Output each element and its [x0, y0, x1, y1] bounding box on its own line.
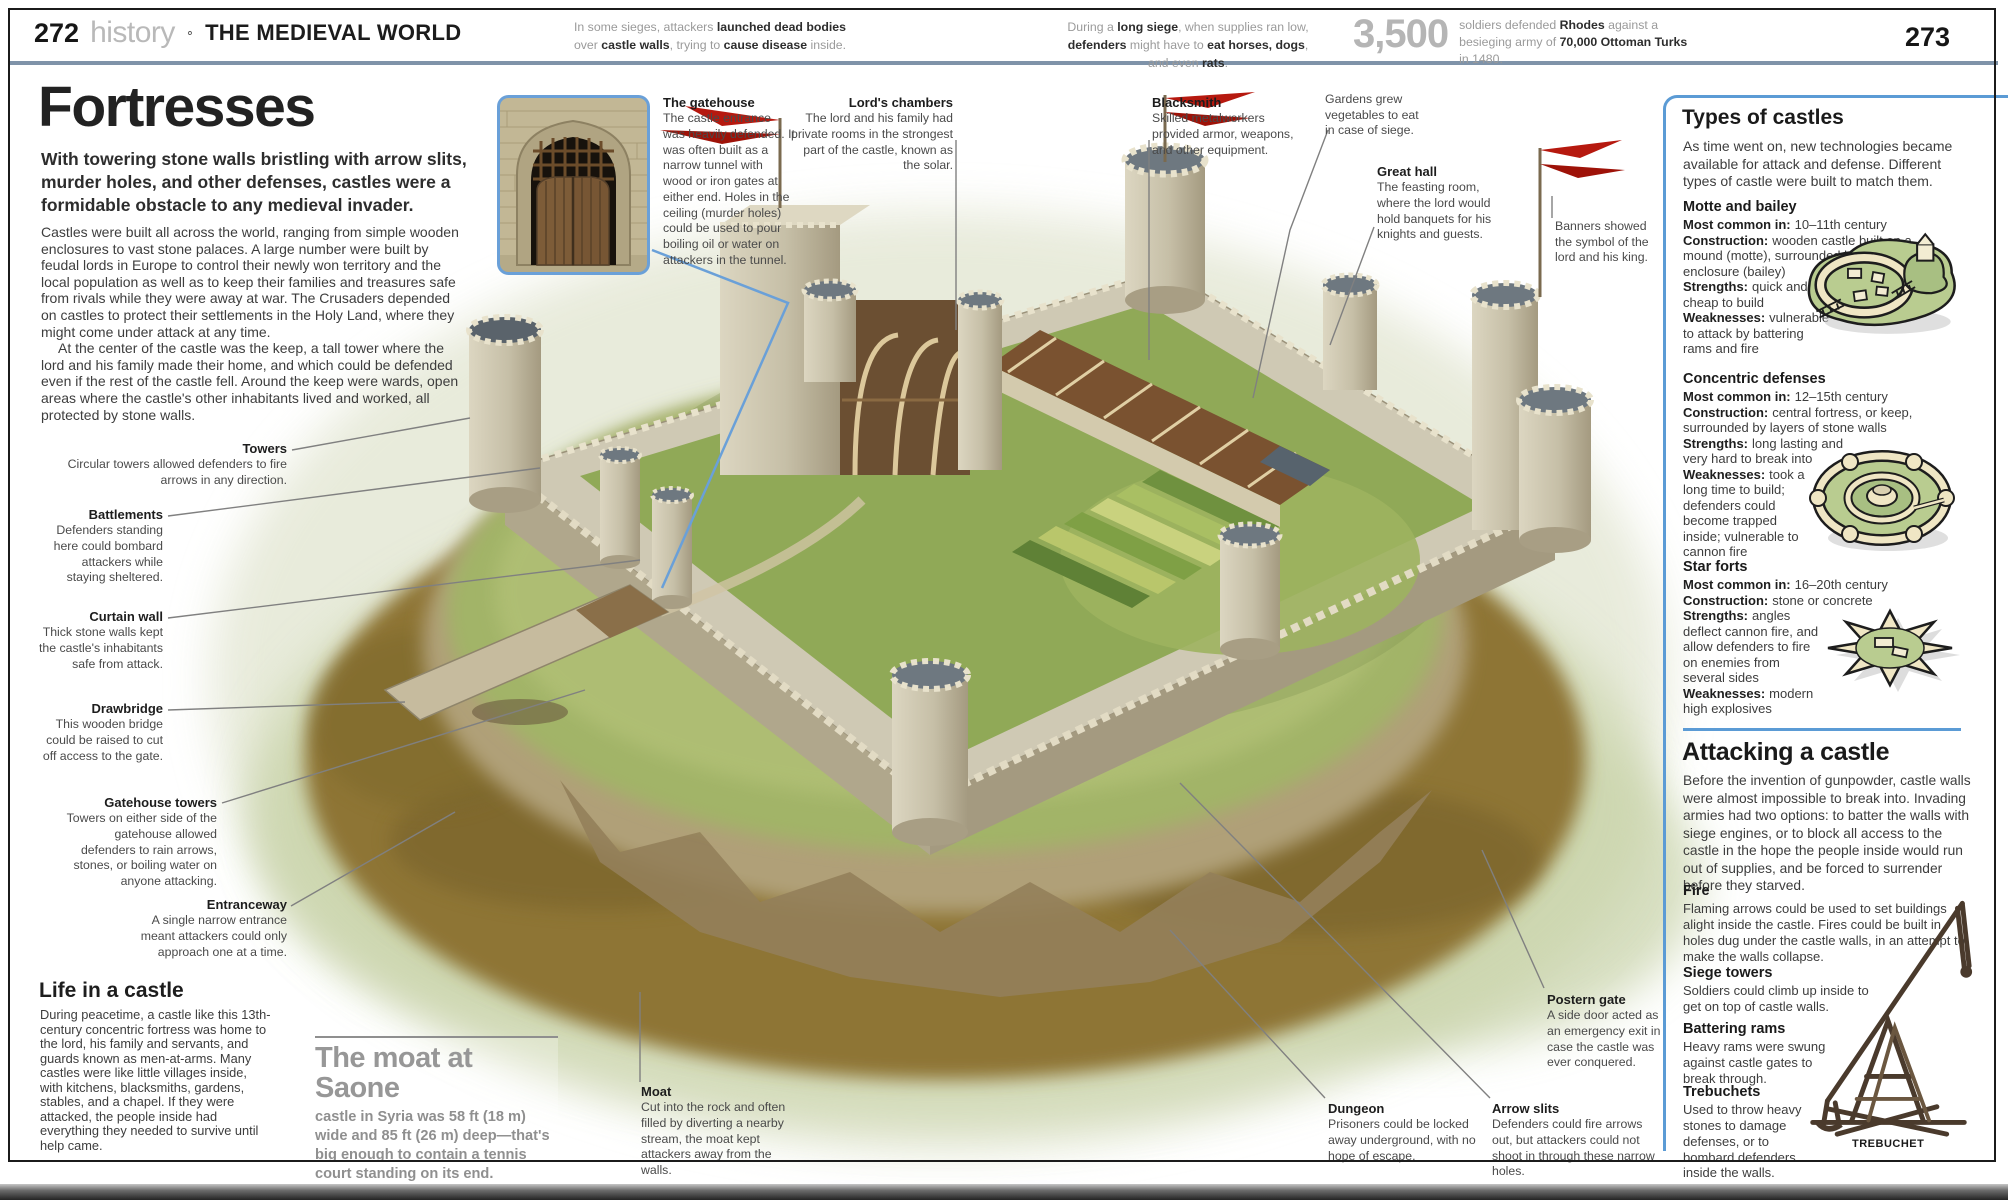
stat-number: 3,500: [1353, 14, 1448, 54]
annotation-title: Moat: [641, 1084, 799, 1100]
header-stat: 3,500 soldiers defended Rhodes against a…: [1353, 14, 1691, 69]
field-label: Construction:: [1683, 593, 1768, 608]
annotation-moat: Moat Cut into the rock and often filled …: [641, 1084, 799, 1179]
field-label: Most common in:: [1683, 389, 1791, 404]
factoid-text: , trying to: [670, 38, 724, 52]
gatehouse-photo-image: [497, 95, 650, 275]
annotation-title: Curtain wall: [35, 609, 163, 625]
field-label: Most common in:: [1683, 577, 1791, 592]
annotation-text: The feasting room, where the lord would …: [1377, 180, 1515, 243]
moat-callout-title: The moat at Saone: [315, 1043, 558, 1104]
factoid-bold: cause disease: [724, 38, 807, 52]
sidebar: Types of castles As time went on, new te…: [1663, 95, 2008, 1151]
life-in-castle-title: Life in a castle: [39, 979, 184, 1003]
entry-title: Motte and bailey: [1683, 198, 1971, 216]
annotation-text: The lord and his family had private room…: [788, 111, 953, 174]
life-in-castle-text: During peacetime, a castle like this 13t…: [40, 1008, 272, 1153]
annotation-dungeon: Dungeon Prisoners could be locked away u…: [1328, 1101, 1498, 1164]
field-value: 12–15th century: [1795, 389, 1888, 404]
stat-bold: 70,000 Ottoman Turks: [1560, 35, 1688, 49]
annotation-gatehouse-towers: Gatehouse towers Towers on either side o…: [62, 795, 217, 890]
entry-title: Star forts: [1683, 558, 1971, 576]
field-label: Most common in:: [1683, 217, 1791, 232]
star-fort-diagram: [1801, 588, 1979, 710]
field-label: Weaknesses:: [1683, 467, 1765, 482]
annotation-text: Banners showed the symbol of the lord an…: [1555, 219, 1661, 266]
field-label: Construction:: [1683, 405, 1768, 420]
factoid-bold: castle walls: [601, 38, 669, 52]
field-label: Weaknesses:: [1683, 686, 1765, 701]
annotation-entranceway: Entranceway A single narrow entrance mea…: [115, 897, 287, 960]
header-factoid-2: During a long siege, when supplies ran l…: [1058, 19, 1318, 72]
chapter-title: THE MEDIEVAL WORLD: [205, 20, 461, 46]
annotation-title: Entranceway: [115, 897, 287, 913]
field: Construction:central fortress, or keep, …: [1683, 405, 1951, 436]
annotation-title: Postern gate: [1547, 992, 1661, 1008]
page-title: Fortresses: [38, 74, 315, 140]
annotation-title: Gatehouse towers: [62, 795, 217, 811]
annotation-title: Battlements: [47, 507, 163, 523]
header-left: 272 history ∘ THE MEDIEVAL WORLD: [34, 16, 461, 50]
factoid-bold: long siege: [1117, 20, 1178, 34]
annotation-great-hall: Great hall The feasting room, where the …: [1377, 164, 1515, 243]
section-label: history: [90, 16, 175, 50]
photo-callout-line: [652, 250, 788, 588]
moat-callout-text: castle in Syria was 58 ft (18 m) wide an…: [315, 1108, 558, 1184]
page-number-right: 273: [1905, 22, 1950, 53]
section-separator-icon: ∘: [186, 25, 194, 41]
annotation-text: Thick stone walls kept the castle's inha…: [35, 625, 163, 672]
types-of-castles-intro: As time went on, new technologies became…: [1683, 138, 1971, 191]
factoid-bold: eat horses, dogs: [1207, 38, 1305, 52]
stat-bold: Rhodes: [1560, 18, 1605, 32]
standfirst: With towering stone walls bristling with…: [41, 148, 481, 217]
factoid-text: During a: [1067, 20, 1117, 34]
annotation-curtain-wall: Curtain wall Thick stone walls kept the …: [35, 609, 163, 672]
annotation-title: The gatehouse: [663, 95, 795, 111]
concentric-defenses-diagram: [1796, 438, 1968, 560]
book-spread: 272 history ∘ THE MEDIEVAL WORLD In some…: [0, 0, 2008, 1200]
stat-text: soldiers defended Rhodes against a besie…: [1459, 14, 1691, 69]
header-rule: [10, 61, 1998, 65]
annotation-battlements: Battlements Defenders standing here coul…: [47, 507, 163, 586]
factoid-text: might have to: [1126, 38, 1207, 52]
sidebar-divider: [1683, 728, 1961, 731]
entry-fields-narrow: Weaknesses:took a long time to build; de…: [1683, 467, 1813, 560]
intro-body: Castles were built all across the world,…: [41, 224, 463, 423]
annotation-drawbridge: Drawbridge This wooden bridge could be r…: [35, 701, 163, 764]
annotation-banners: Banners showed the symbol of the lord an…: [1555, 219, 1661, 266]
stat-seg: soldiers defended: [1459, 18, 1560, 32]
annotation-text: Defenders standing here could bombard at…: [47, 523, 163, 586]
annotation-arrow-slits: Arrow slits Defenders could fire arrows …: [1492, 1101, 1664, 1180]
annotation-title: Lord's chambers: [788, 95, 953, 111]
entry-title: Concentric defenses: [1683, 370, 1971, 388]
annotation-text: A single narrow entrance meant attackers…: [115, 913, 287, 960]
field-label: Construction:: [1683, 233, 1768, 248]
field-label: Strengths:: [1683, 608, 1748, 623]
intro-paragraph-2: At the center of the castle was the keep…: [41, 340, 463, 423]
field-label: Strengths:: [1683, 436, 1748, 451]
factoid-text: inside.: [807, 38, 846, 52]
factoid-text: In some sieges, attackers: [574, 20, 717, 34]
page-edge: [0, 1184, 2008, 1200]
field: Weaknesses:took a long time to build; de…: [1683, 467, 1813, 560]
annotation-text: Skilled metalworkers provided armor, wea…: [1152, 111, 1312, 158]
gatehouse-photo: [497, 95, 650, 275]
attacking-a-castle-title: Attacking a castle: [1682, 738, 1889, 767]
moat-callout: The moat at Saone castle in Syria was 58…: [315, 1036, 558, 1196]
intro-paragraph-1: Castles were built all across the world,…: [41, 224, 463, 340]
annotation-text: Prisoners could be locked away undergrou…: [1328, 1117, 1498, 1164]
factoid-bold: launched dead bodies: [717, 20, 846, 34]
annotation-text: A side door acted as an emergency exit i…: [1547, 1008, 1661, 1071]
annotation-text: Gardens grew vegetables to eat in case o…: [1325, 92, 1427, 139]
factoid-text: , when supplies ran low,: [1178, 20, 1309, 34]
field-label: Weaknesses:: [1683, 310, 1765, 325]
annotation-title: Arrow slits: [1492, 1101, 1664, 1117]
annotation-blacksmith: Blacksmith Skilled metalworkers provided…: [1152, 95, 1312, 158]
factoid-text: over: [574, 38, 601, 52]
types-of-castles-title: Types of castles: [1682, 106, 1844, 130]
field: Most common in:12–15th century: [1683, 389, 1951, 405]
annotation-text: This wooden bridge could be raised to cu…: [35, 717, 163, 764]
annotation-title: Dungeon: [1328, 1101, 1498, 1117]
annotation-gatehouse: The gatehouse The castle entrance was he…: [663, 95, 795, 269]
header-factoid-1: In some sieges, attackers launched dead …: [565, 19, 855, 55]
annotation-towers: Towers Circular towers allowed defenders…: [37, 441, 287, 489]
factoid-text: .: [1225, 56, 1228, 70]
factoid-bold: defenders: [1068, 38, 1127, 52]
annotation-gardens: Gardens grew vegetables to eat in case o…: [1325, 92, 1427, 139]
annotation-text: The castle entrance was heavily defended…: [663, 111, 795, 268]
trebuchet-image: [1796, 876, 1981, 1140]
annotation-lords-chambers: Lord's chambers The lord and his family …: [788, 95, 953, 174]
factoid-bold: rats: [1202, 56, 1225, 70]
page-number-left: 272: [34, 18, 79, 49]
annotation-title: Blacksmith: [1152, 95, 1312, 111]
field-label: Strengths:: [1683, 279, 1748, 294]
annotation-text: Cut into the rock and often filled by di…: [641, 1100, 799, 1179]
annotation-text: Towers on either side of the gatehouse a…: [62, 811, 217, 890]
annotation-title: Great hall: [1377, 164, 1515, 180]
motte-and-bailey-diagram: [1791, 222, 1969, 342]
annotation-title: Drawbridge: [35, 701, 163, 717]
annotation-postern-gate: Postern gate A side door acted as an eme…: [1547, 992, 1661, 1071]
annotation-text: Circular towers allowed defenders to fir…: [37, 457, 287, 488]
annotation-title: Towers: [37, 441, 287, 457]
annotation-text: Defenders could fire arrows out, but att…: [1492, 1117, 1664, 1180]
stat-seg: in 1480.: [1459, 52, 1503, 66]
trebuchet-caption: TREBUCHET: [1852, 1138, 1924, 1150]
